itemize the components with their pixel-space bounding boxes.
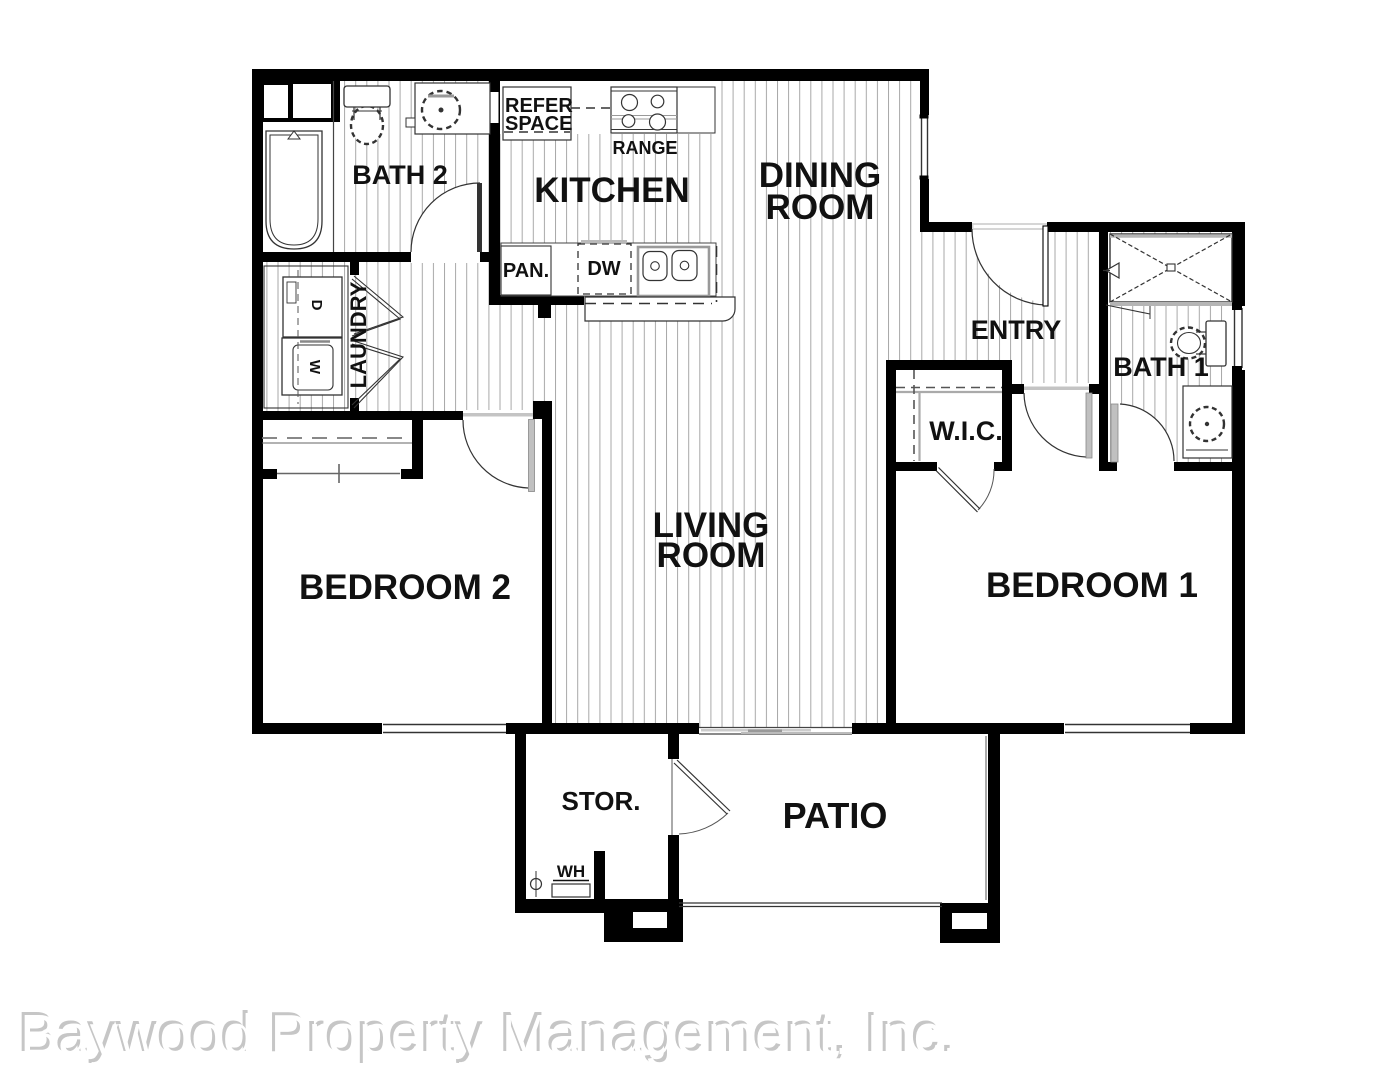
svg-text:LAUNDRY: LAUNDRY	[346, 281, 371, 388]
svg-text:PAN.: PAN.	[503, 260, 549, 282]
svg-text:STOR.: STOR.	[562, 786, 641, 816]
svg-text:BEDROOM 1: BEDROOM 1	[986, 566, 1198, 605]
svg-text:ROOM: ROOM	[766, 188, 875, 227]
svg-text:BATH 1: BATH 1	[1113, 352, 1209, 382]
svg-text:W.I.C.: W.I.C.	[929, 416, 1003, 446]
svg-text:SPACE: SPACE	[505, 113, 572, 135]
svg-text:W: W	[306, 360, 323, 375]
svg-text:ENTRY: ENTRY	[971, 315, 1062, 345]
svg-text:BEDROOM 2: BEDROOM 2	[299, 568, 511, 607]
svg-text:Baywood Property Management, I: Baywood Property Management, Inc.	[20, 1003, 958, 1067]
svg-text:RANGE: RANGE	[612, 138, 677, 158]
svg-text:ROOM: ROOM	[657, 536, 766, 575]
svg-text:KITCHEN: KITCHEN	[534, 171, 690, 210]
svg-text:DW: DW	[587, 258, 620, 280]
svg-text:WH: WH	[557, 862, 585, 881]
svg-text:D: D	[308, 300, 325, 311]
svg-text:PATIO: PATIO	[783, 795, 888, 836]
svg-text:BATH 2: BATH 2	[352, 160, 448, 190]
